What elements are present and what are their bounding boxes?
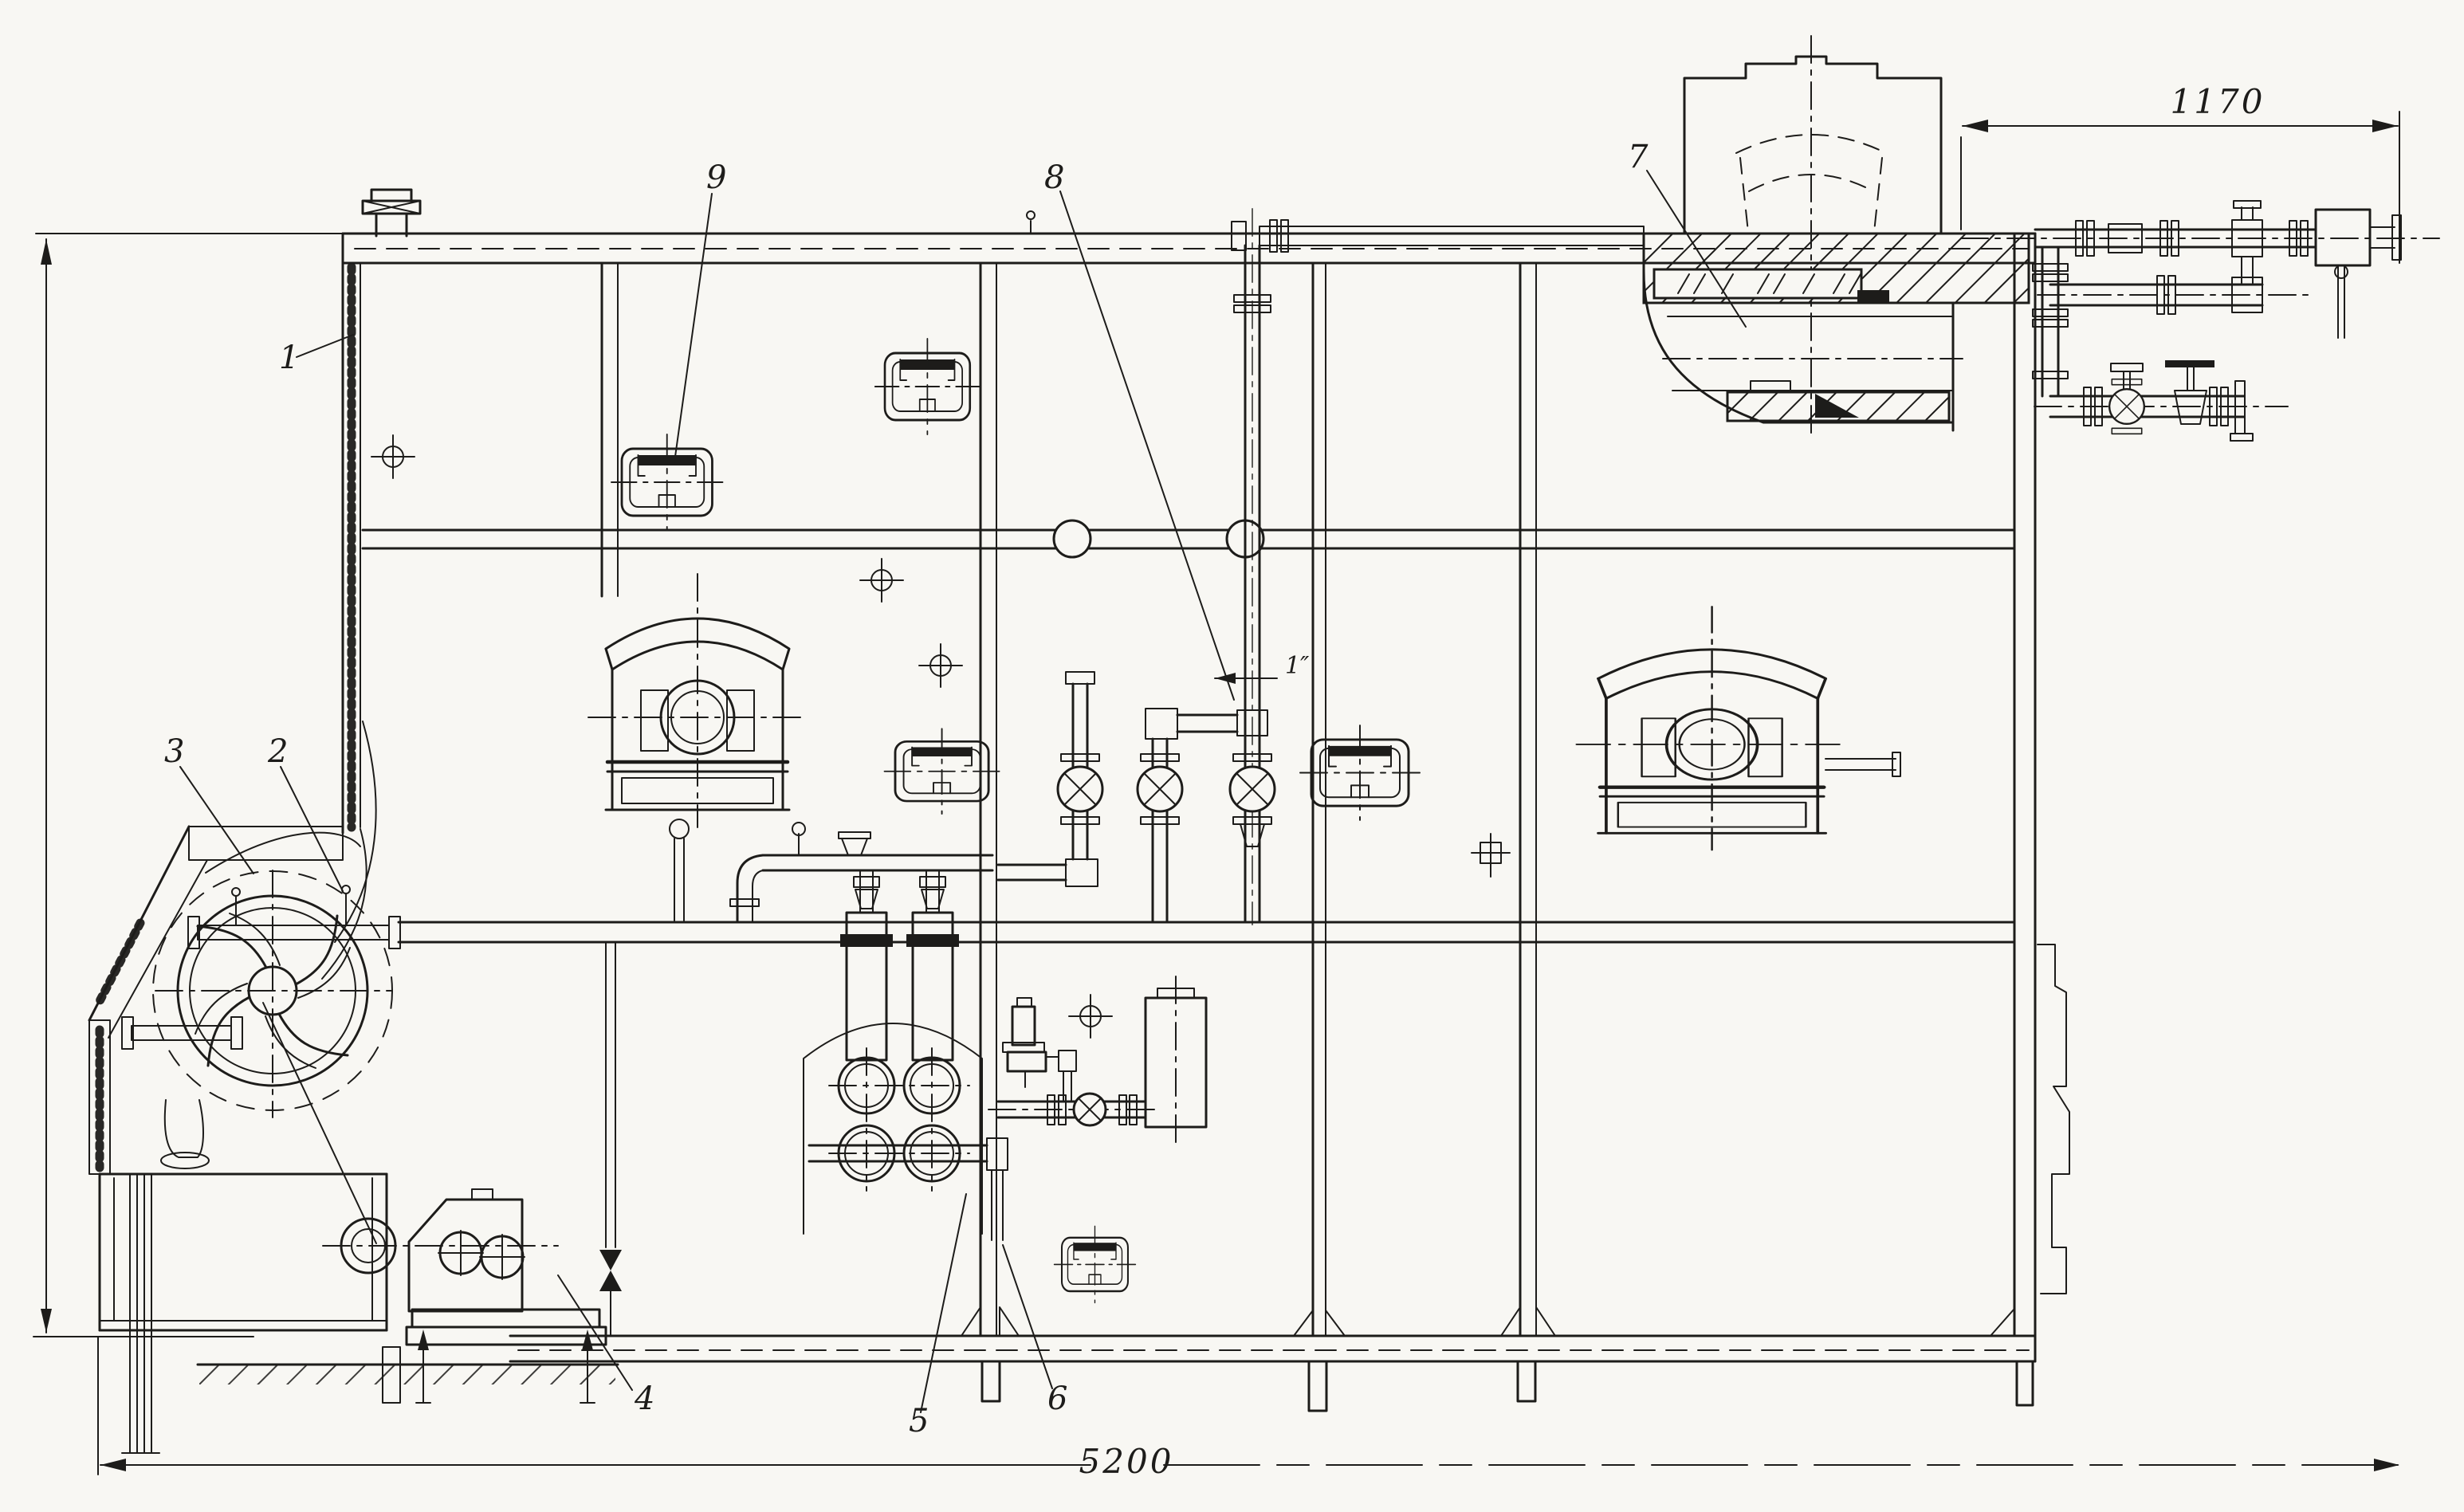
wall-bracket — [2038, 945, 2069, 1294]
callout-7: 7 — [1628, 139, 1649, 175]
callout-2: 2 — [267, 733, 288, 770]
pipe-size-label: 1″ — [1285, 652, 1310, 680]
top-nozzle — [363, 190, 420, 236]
latch-mid-right — [1300, 725, 1420, 820]
right-wall — [1990, 234, 2069, 1405]
dim-1170-text: 1170 — [2171, 82, 2266, 121]
pedestal-frame — [100, 1174, 387, 1453]
mid-piping — [988, 976, 1206, 1146]
filter-cylinders — [804, 870, 1008, 1240]
small-fittings — [371, 435, 1510, 1038]
latch-mid-left — [885, 729, 1000, 814]
top-rail-stub — [1027, 211, 1035, 234]
latch-upper-left — [611, 434, 723, 530]
cylinder-stems — [854, 870, 945, 913]
latch-bottom — [1054, 1226, 1135, 1302]
left-wall — [343, 234, 360, 833]
callout-1: 1 — [279, 340, 299, 376]
latch-upper-mid — [875, 339, 980, 434]
dim-5200-text: 5200 — [1079, 1442, 1174, 1481]
pipe-coils — [829, 1048, 969, 1191]
technical-drawing: 1170 1″ — [0, 0, 2464, 1512]
callout-9: 9 — [706, 159, 726, 196]
right-piping — [1961, 201, 2439, 441]
callout-3: 3 — [164, 733, 184, 770]
callout-8: 8 — [1044, 159, 1064, 196]
callout-5: 5 — [909, 1403, 929, 1439]
dome-assembly — [1644, 36, 2029, 434]
access-latches — [611, 339, 1420, 1302]
callout-6: 6 — [1047, 1380, 1067, 1417]
valve-risers: 1″ — [998, 209, 1310, 925]
top-steam-pipe — [1232, 220, 1644, 252]
callouts: 1 2 3 4 5 6 7 8 9 — [164, 139, 1746, 1439]
feed-tank-box — [1146, 976, 1206, 1146]
callout-4: 4 — [634, 1380, 654, 1417]
pump-assembly — [198, 1189, 618, 1403]
gauge-tubes — [599, 819, 689, 1336]
valve-actuator-box — [2316, 210, 2401, 338]
drawing-sheet: 1170 1″ — [0, 0, 2464, 1512]
tie-bars — [122, 886, 400, 1049]
arched-cover-left — [588, 574, 807, 827]
globe-valve — [2109, 363, 2144, 434]
arched-cover-right — [1577, 607, 1900, 850]
pressure-regulator — [1003, 998, 1076, 1102]
